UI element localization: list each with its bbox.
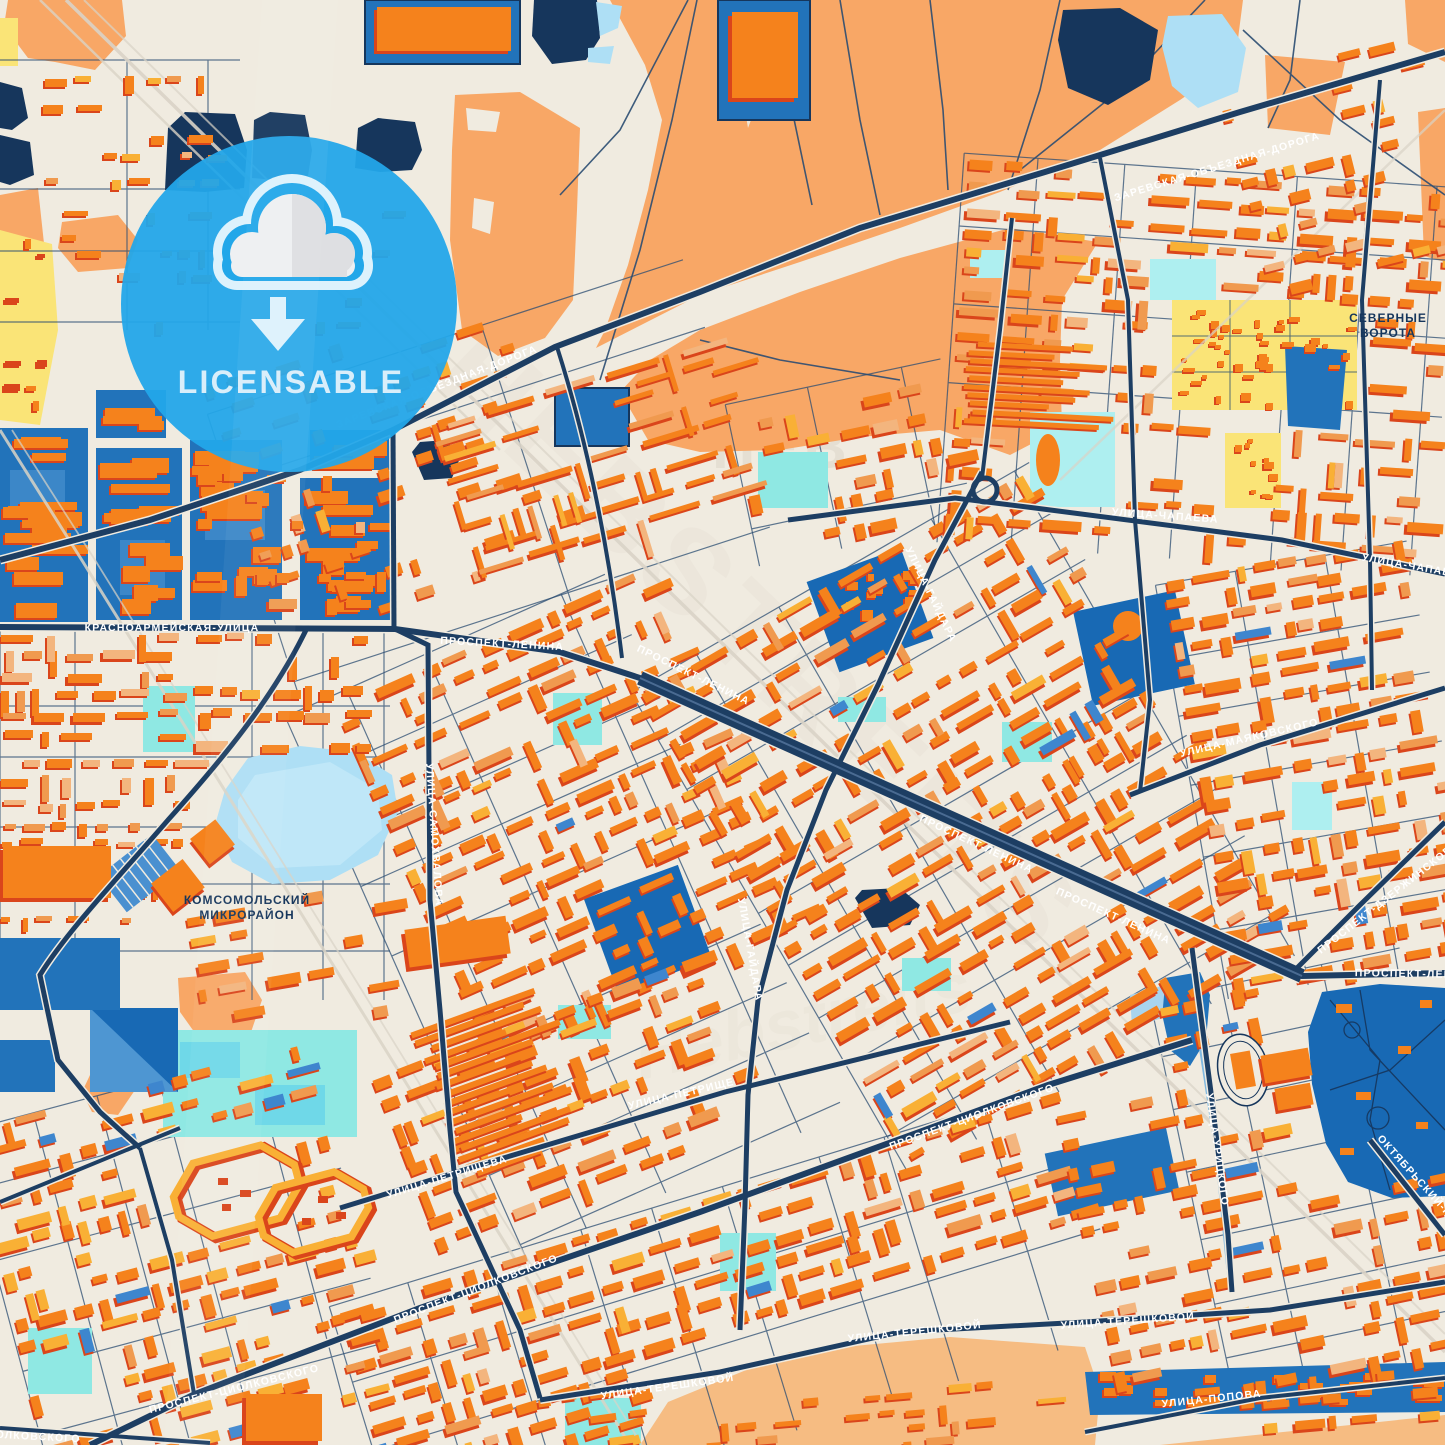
svg-text:ВОРОТА: ВОРОТА	[1360, 326, 1416, 340]
svg-text:СЕВЕРНЫЕ: СЕВЕРНЫЕ	[1349, 311, 1427, 325]
svg-text:ПРОСПЕКТ-ЛЕНИ: ПРОСПЕКТ-ЛЕНИ	[1355, 967, 1445, 981]
